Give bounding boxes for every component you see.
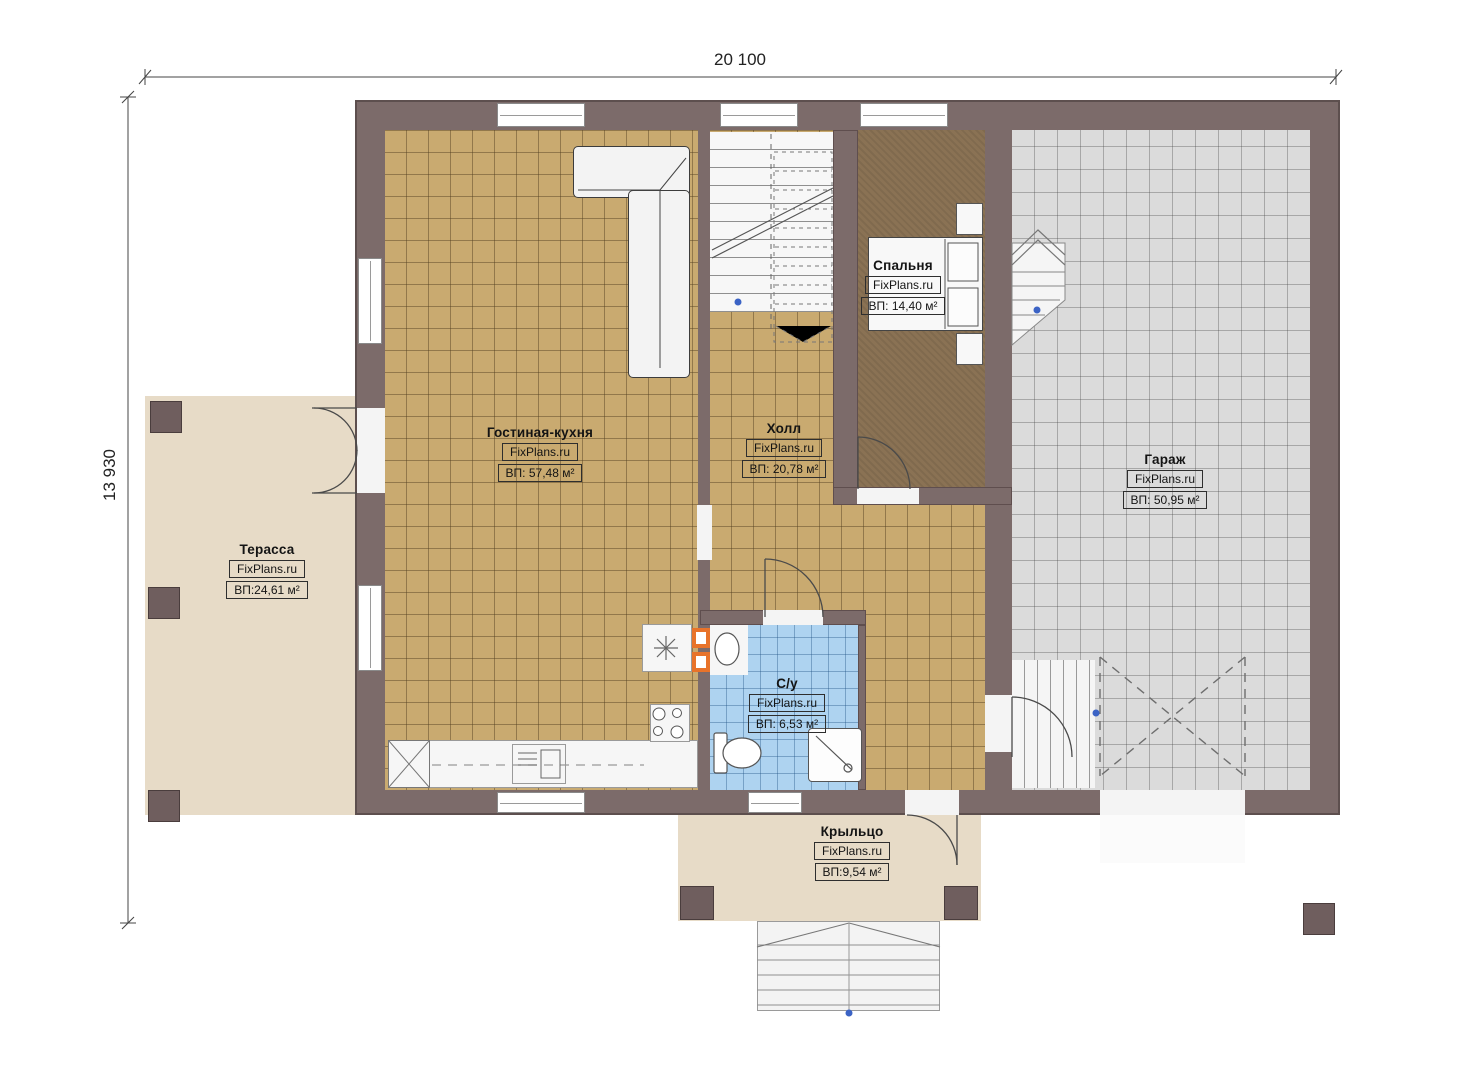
window	[720, 103, 798, 127]
room-area: ВП:9,54 м²	[815, 863, 890, 881]
entrance-door-opening	[905, 790, 959, 815]
room-area: ВП: 14,40 м²	[861, 297, 946, 315]
room-label-living: Гостиная-кухня FixPlans.ru ВП: 57,48 м²	[455, 425, 625, 482]
staircase-main	[710, 132, 833, 312]
porch-post	[944, 886, 978, 920]
sofa	[628, 190, 690, 378]
brand-watermark: FixPlans.ru	[502, 443, 578, 461]
terrace-door-opening	[357, 408, 385, 493]
nightstand	[956, 203, 983, 235]
boiler-unit	[692, 628, 710, 648]
dimension-width-label: 20 100	[690, 50, 790, 70]
room-area: ВП: 50,95 м²	[1123, 491, 1208, 509]
room-label-porch: Крыльцо FixPlans.ru ВП:9,54 м²	[782, 824, 922, 881]
brand-watermark: FixPlans.ru	[1127, 470, 1203, 488]
room-name: С/у	[717, 676, 857, 691]
room-label-bathroom: С/у FixPlans.ru ВП: 6,53 м²	[717, 676, 857, 733]
room-area: ВП:24,61 м²	[226, 581, 308, 599]
room-label-terrace: Терасса FixPlans.ru ВП:24,61 м²	[197, 542, 337, 599]
living-hall-opening	[697, 505, 712, 560]
garage-door-opening	[985, 695, 1012, 752]
kitchen-unit	[388, 740, 430, 788]
terrace-post	[148, 790, 180, 822]
window	[860, 103, 948, 127]
window	[497, 792, 585, 813]
window	[358, 258, 382, 344]
room-name: Спальня	[838, 258, 968, 273]
dishwasher	[512, 744, 566, 784]
terrace-post	[150, 401, 182, 433]
garage-gate-opening	[1100, 790, 1245, 815]
room-label-bedroom: Спальня FixPlans.ru ВП: 14,40 м²	[838, 258, 968, 315]
garage-entry-steps	[1012, 660, 1095, 788]
window	[497, 103, 585, 127]
nightstand	[956, 333, 983, 365]
brand-watermark: FixPlans.ru	[865, 276, 941, 294]
floor-plan: 20 100 13 930 Гостиная-кухня FixPlans.ru…	[0, 0, 1474, 1080]
brand-watermark: FixPlans.ru	[229, 560, 305, 578]
bedroom-door-opening	[857, 488, 919, 504]
window	[358, 585, 382, 671]
room-name: Терасса	[197, 542, 337, 557]
room-area: ВП: 20,78 м²	[742, 460, 827, 478]
pier-post	[1303, 903, 1335, 935]
window	[748, 792, 802, 813]
shower	[808, 728, 862, 782]
porch-steps	[757, 921, 940, 1011]
room-area: ВП: 6,53 м²	[748, 715, 826, 733]
room-name: Гараж	[1095, 452, 1235, 467]
room-area: ВП: 57,48 м²	[498, 464, 583, 482]
room-name: Гостиная-кухня	[455, 425, 625, 440]
room-label-garage: Гараж FixPlans.ru ВП: 50,95 м²	[1095, 452, 1235, 509]
fridge	[642, 624, 692, 672]
bathroom-door-opening	[763, 610, 823, 625]
sink-counter	[710, 625, 748, 675]
boiler-unit	[692, 652, 710, 672]
room-name: Холл	[714, 421, 854, 436]
brand-watermark: FixPlans.ru	[749, 694, 825, 712]
brand-watermark: FixPlans.ru	[746, 439, 822, 457]
dimension-height-label: 13 930	[100, 420, 120, 530]
porch-post	[680, 886, 714, 920]
room-label-hall: Холл FixPlans.ru ВП: 20,78 м²	[714, 421, 854, 478]
brand-watermark: FixPlans.ru	[814, 842, 890, 860]
garage-apron	[1100, 815, 1245, 863]
cooktop	[650, 704, 690, 742]
room-name: Крыльцо	[782, 824, 922, 839]
terrace-post	[148, 587, 180, 619]
